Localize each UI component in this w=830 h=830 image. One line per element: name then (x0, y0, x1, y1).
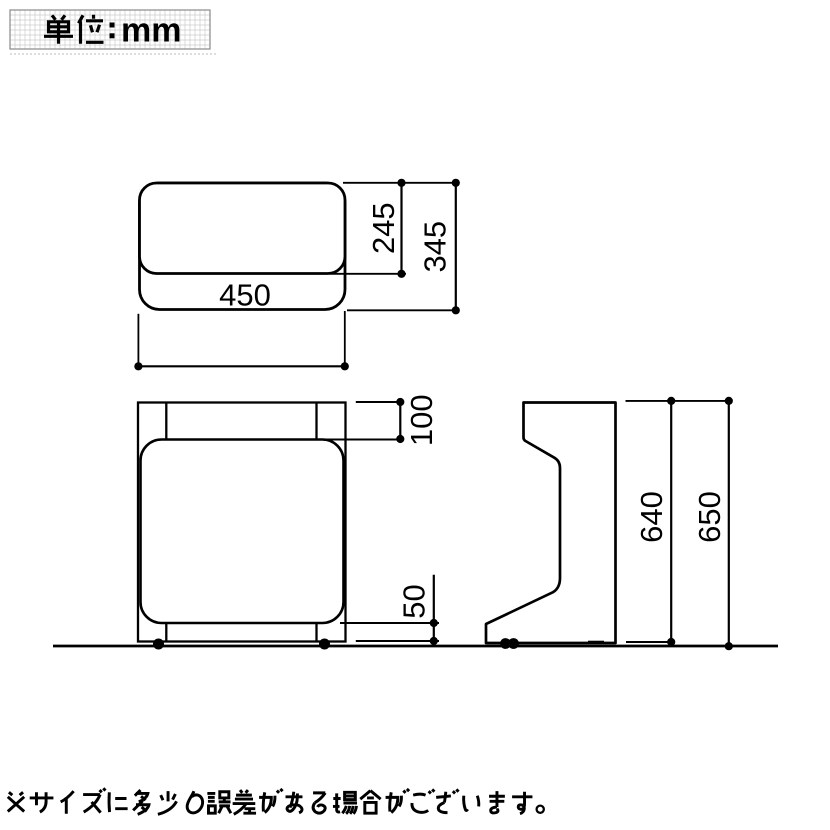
svg-text:650: 650 (692, 491, 727, 543)
svg-text:mm: mm (121, 12, 181, 50)
svg-text:50: 50 (397, 584, 432, 618)
svg-text:345: 345 (418, 221, 453, 273)
svg-text:640: 640 (634, 491, 669, 543)
svg-text:450: 450 (219, 278, 271, 313)
svg-text:100: 100 (404, 394, 439, 446)
svg-text:245: 245 (366, 202, 401, 254)
